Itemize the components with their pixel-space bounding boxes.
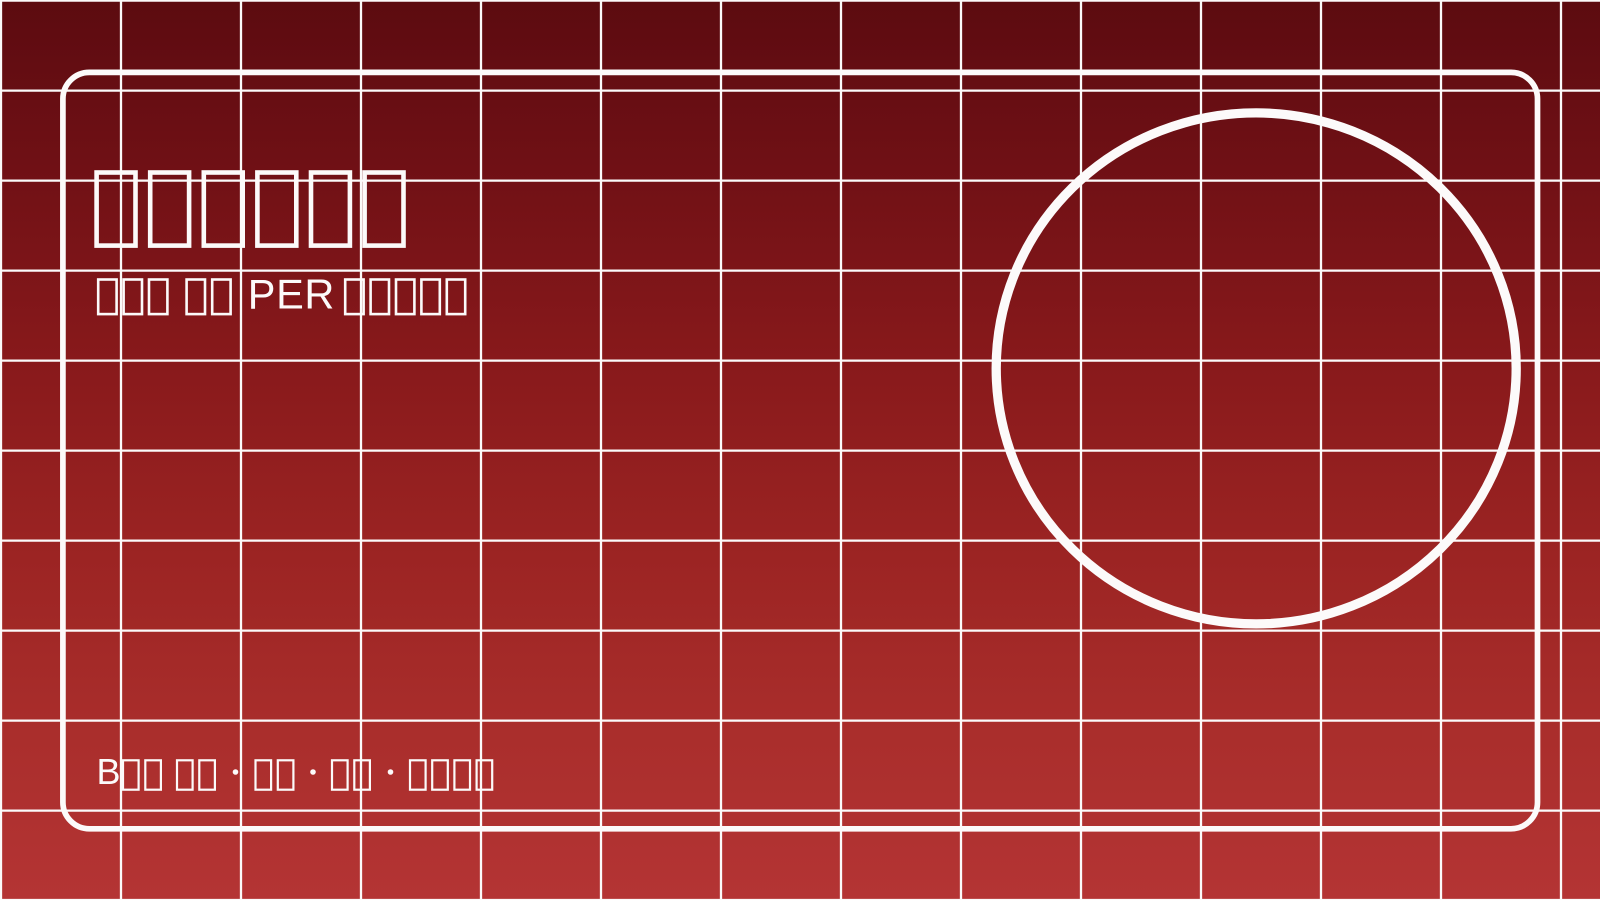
svg-text:B: B [97, 751, 121, 792]
svg-text:PER: PER [248, 271, 335, 318]
